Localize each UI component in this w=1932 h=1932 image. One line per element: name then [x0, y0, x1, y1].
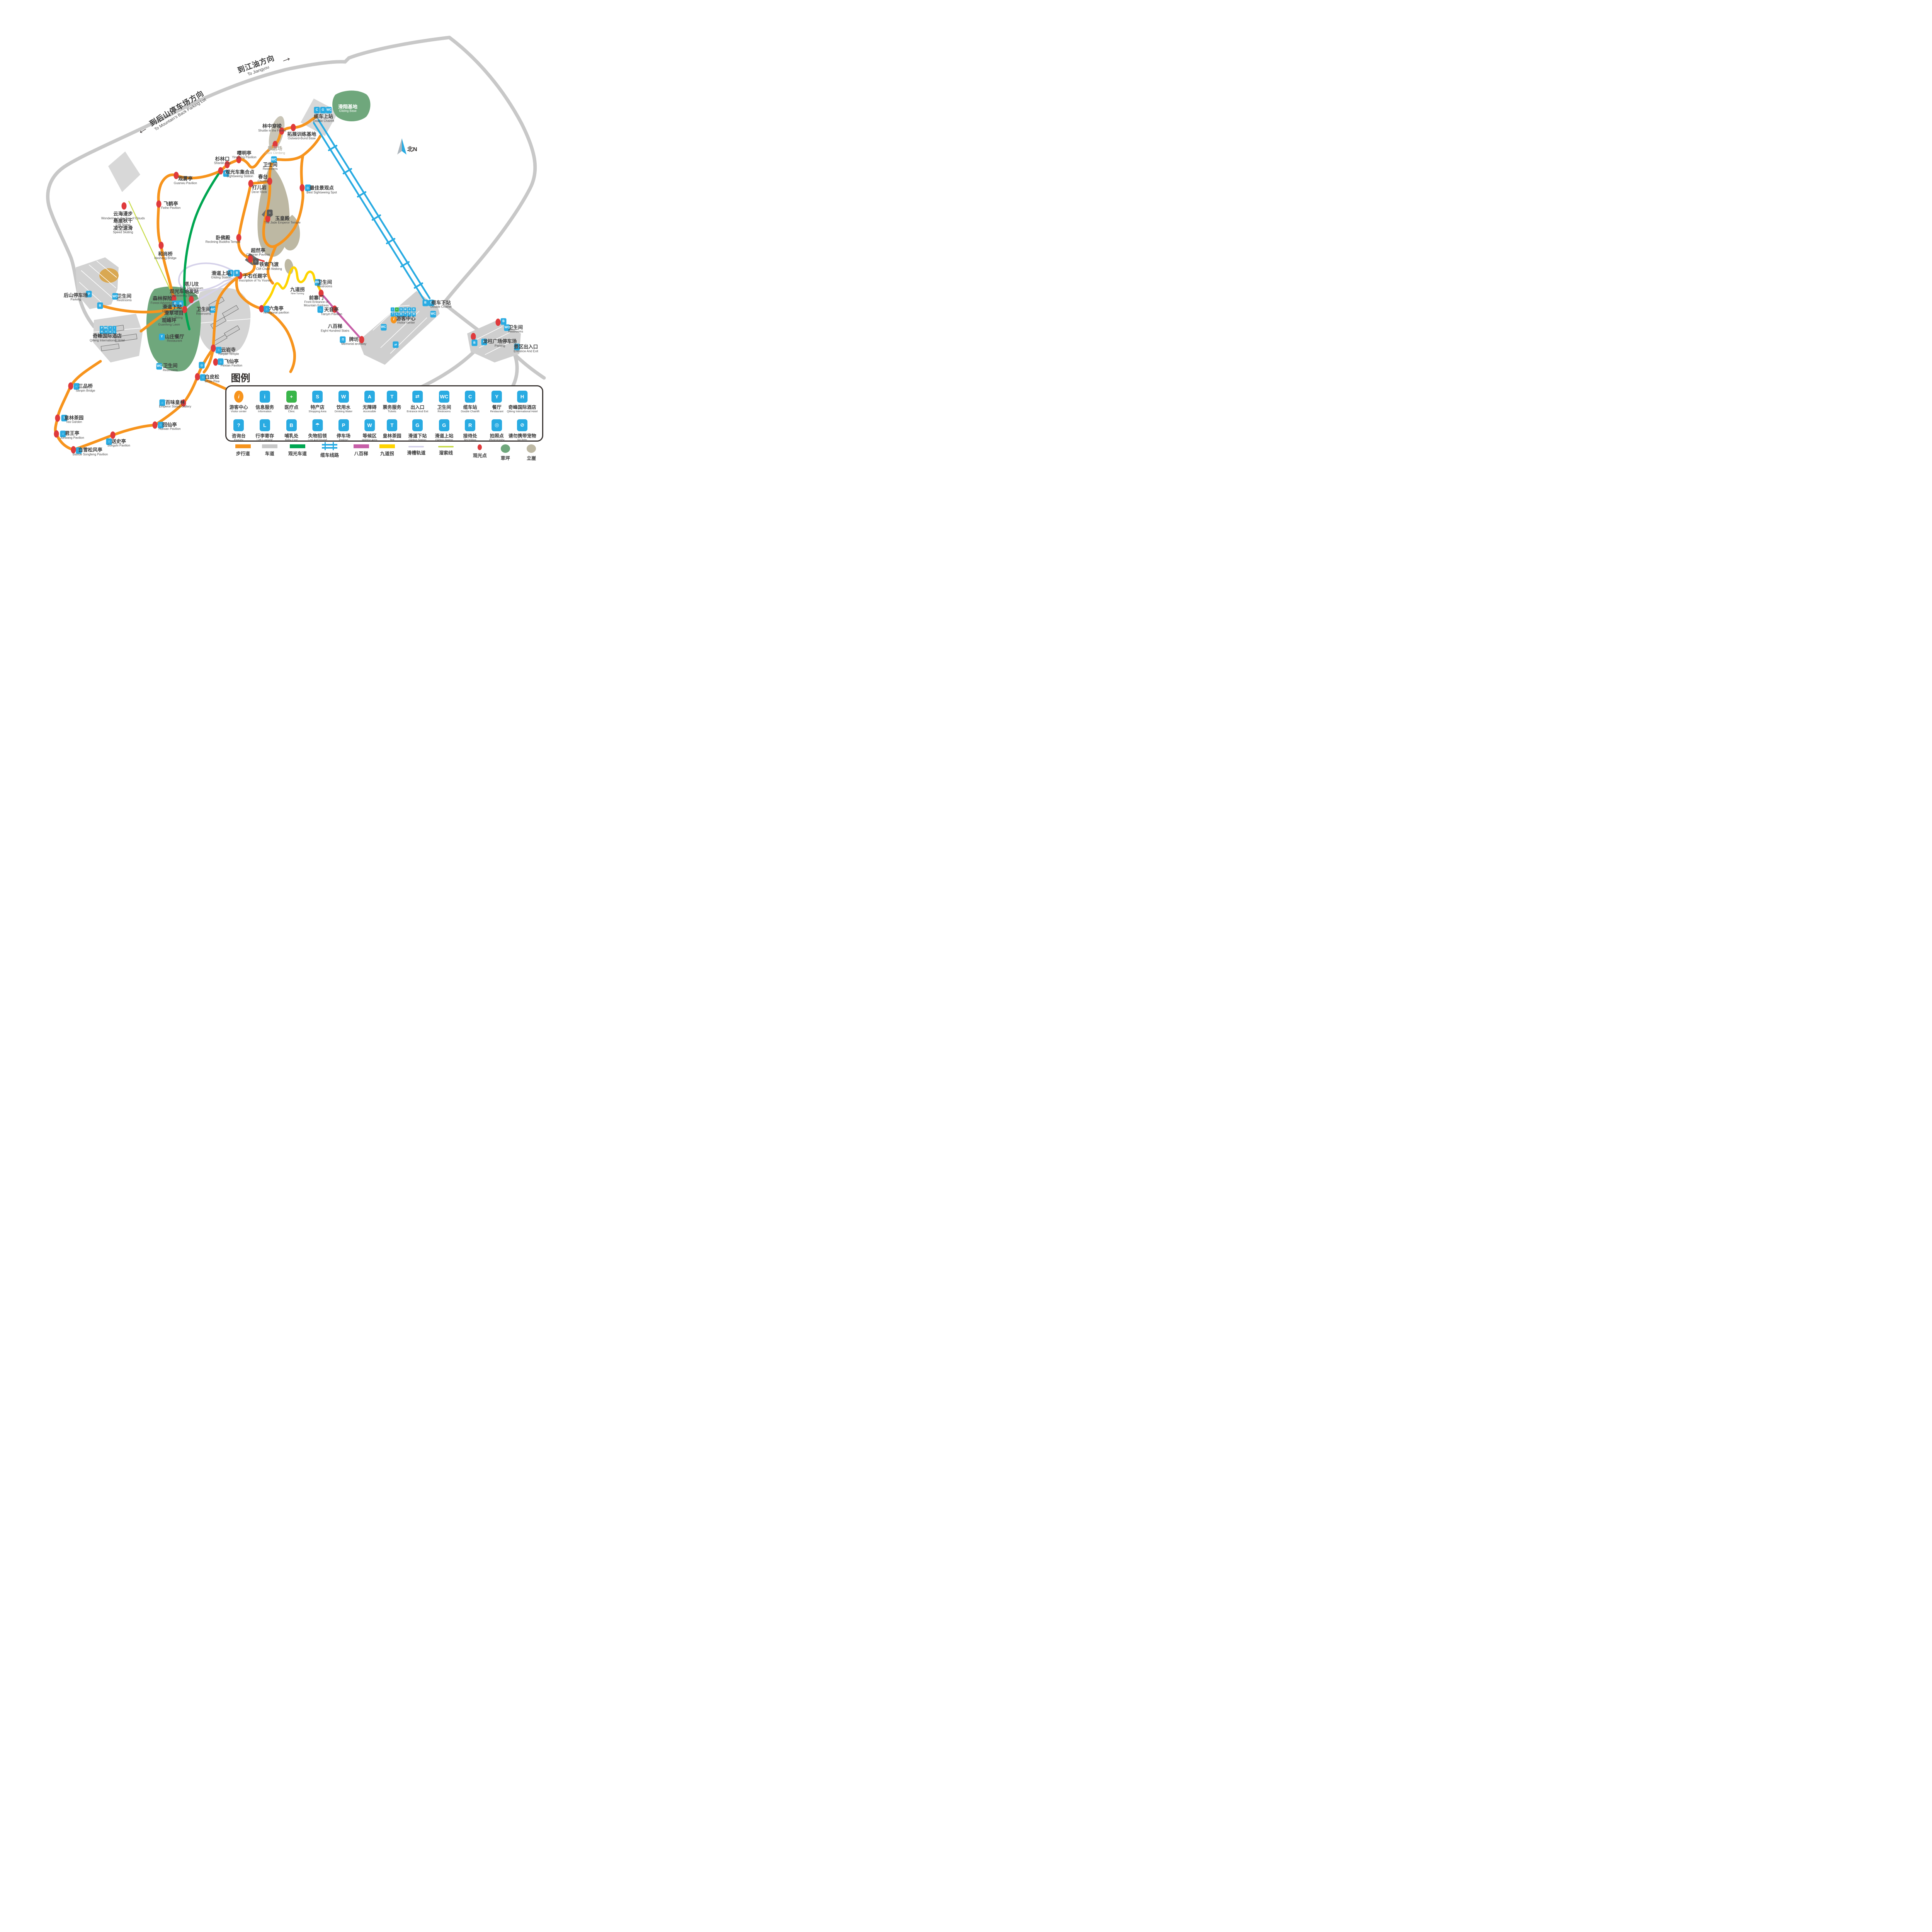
legend-zh: 饮用水 [335, 404, 352, 410]
legend-en: Gliding Station [408, 439, 427, 442]
legend-item: R接待处Reception [463, 419, 477, 442]
sightseeing-spot-dot [225, 161, 230, 168]
legend-line-zh: 观光点 [473, 452, 487, 459]
legend-zh: 缆车站 [461, 404, 480, 410]
bus-icon: B [97, 303, 103, 309]
nopets-icon: ⊘ [517, 419, 527, 431]
enquiry-icon: ? [233, 419, 244, 431]
sightseeing-spot-dot [189, 296, 194, 303]
legend-en: Enquiry [232, 439, 246, 442]
visitor-icon: i [391, 316, 397, 323]
reception-icon: R [465, 419, 475, 431]
restaurant-icon: Y [159, 333, 165, 340]
legend-en: Restrooms [437, 410, 451, 413]
legend-item: T票务服务Tickets [383, 391, 401, 413]
sightseeing-spot-dot [159, 242, 164, 249]
legend-swatch-bar [235, 444, 251, 448]
bus-icon: B [422, 299, 428, 306]
legend-en: Entrance And Exit [407, 410, 429, 413]
legend-line-zh: 草坪 [501, 455, 510, 461]
lost-icon: ☂ [403, 312, 407, 316]
restroom-icon: WC [156, 363, 162, 369]
shopping-icon: S [399, 308, 403, 312]
water-icon: W [338, 391, 349, 403]
legend-zh: 滑道上站 [435, 432, 453, 439]
sightseeing-spot-dot [272, 141, 277, 148]
waiting-icon: W [364, 419, 375, 431]
building-icon: ⌂ [267, 209, 272, 216]
legend-item: T皇林茶园Tea [383, 419, 401, 442]
camera-icon: ◎ [199, 362, 205, 369]
bus-icon: B [471, 340, 477, 346]
legend-item: ☂失物招领Lost And Found [308, 419, 327, 442]
legend-en: Drinking Water [335, 410, 352, 413]
legend-line-zh: 立崖 [527, 455, 536, 461]
legend-zh: 停车场 [337, 432, 350, 439]
sightseeing-spot-dot [122, 202, 127, 209]
legend-zh: 票务服务 [383, 404, 401, 410]
waiting-icon: W [412, 312, 416, 316]
luggage-icon: L [395, 312, 399, 316]
nopets-icon: ⊘ [108, 330, 112, 334]
restroom-icon: WC [439, 391, 449, 403]
north-arrow-icon [397, 138, 406, 155]
pavilion-icon: ⌂ [60, 430, 66, 437]
legend-swatch-bar [354, 444, 369, 448]
enquiry-icon: ? [391, 312, 395, 316]
legend-en: Parking [337, 439, 350, 442]
legend-zh: 餐厅 [490, 404, 503, 410]
legend-line-item: 立崖 [527, 444, 536, 461]
legend-line-item: 车道 [262, 444, 277, 457]
legend-item: i游客中心Visitor center [230, 391, 248, 413]
sightseeing-spot-dot [359, 336, 364, 344]
legend-title: 图例 [231, 371, 250, 384]
legend-en: Information [255, 410, 274, 413]
sightseeing-spot-dot [236, 156, 241, 163]
bus-icon: B [223, 170, 229, 177]
legend-item: ◎拍照点Photography [489, 419, 505, 442]
restroom-icon: WC [381, 324, 386, 330]
legend-line-item: 步行道 [235, 444, 251, 457]
exit-icon: ⇄ [514, 344, 520, 350]
legend-swatch-bar [262, 444, 277, 448]
sightseeing-spot-dot [291, 124, 296, 131]
legend-zh: 无障碍 [362, 404, 376, 410]
legend-en: Double Chairlift [461, 410, 480, 413]
sightseeing-spot-dot [218, 167, 223, 175]
legend-item: W饮用水Drinking Water [335, 391, 352, 413]
restroom-icon: WC [271, 156, 277, 163]
zipline [129, 201, 174, 298]
legend-item: P停车场Parking [337, 419, 350, 442]
legend-line-zh: 八百梯 [354, 450, 369, 457]
info-icon: i [260, 391, 270, 403]
sightseeing-spot-dot [195, 373, 200, 381]
sightseeing-spot-dot [55, 415, 60, 422]
legend-line-item: 草坪 [501, 444, 510, 461]
legend-zh: 请勿携带宠物 [509, 432, 536, 439]
legend-en: Lost And Found [308, 439, 327, 442]
legend-item: H奇峰国际酒店Qifeng International Hotel [507, 391, 537, 413]
restroom-icon: WC [315, 279, 320, 286]
legend-swatch-bar [290, 444, 305, 448]
legend-zh: 奇峰国际酒店 [507, 404, 537, 410]
legend-line-item: 溜索线 [438, 444, 454, 456]
gliding2-icon: G [439, 419, 449, 431]
camera-icon: ◎ [305, 185, 311, 191]
legend-line-zh: 车道 [262, 450, 277, 457]
legend-en: Photography [489, 439, 505, 442]
legend-en: Baby Care [284, 439, 298, 442]
legend-swatch-thin [438, 446, 454, 447]
legend-en: Visitor center [230, 410, 248, 413]
legend-item: i信息服务Information [255, 391, 274, 413]
luggage-icon: L [260, 419, 270, 431]
legend-line-item: 滑槽轨道 [407, 444, 425, 456]
sightseeing-spot-dot [156, 200, 161, 207]
legend-zh: 行李寄存 [255, 432, 274, 439]
sightseeing-spot-dot [248, 255, 253, 263]
sightseeing-spot-dot [211, 344, 216, 352]
sightseeing-spot-dot [300, 184, 305, 192]
gliding2-icon: G [228, 270, 234, 276]
sightseeing-spot-dot [279, 127, 284, 134]
legend-item: G滑道下站Gliding Station [408, 419, 427, 442]
lost-icon: ☂ [312, 419, 323, 431]
legend-line-zh: 步行道 [235, 450, 251, 457]
clinic-icon: + [286, 391, 297, 403]
legend-swatch-blob [501, 444, 510, 453]
legend-swatch-bar [379, 444, 395, 448]
exit-icon: ⇄ [412, 391, 423, 403]
building-icon: ⌂ [253, 258, 259, 265]
bridge-icon: ∩ [73, 383, 79, 390]
legend-line-item: 缆车线路 [320, 444, 339, 458]
legend-item: B哺乳处Baby Care [284, 419, 298, 442]
legend-item: ?咨询台Enquiry [232, 419, 246, 442]
legend-en: Waiting Area [362, 439, 377, 442]
legend-line-item: 九道拐 [379, 444, 395, 457]
parking-icon: P [481, 338, 487, 345]
bus-icon: B [412, 308, 416, 312]
legend-en: Restaurant [490, 410, 503, 413]
legend-en: Left Luggage [255, 439, 274, 442]
legend-en: Shopping Area [309, 410, 327, 413]
memorial-icon: Π [340, 337, 346, 343]
eight-hundred-stairs-path [321, 293, 362, 340]
bus-icon: B [178, 301, 184, 307]
legend-zh: 拍照点 [489, 432, 505, 439]
parking-icon: P [338, 419, 349, 431]
pavilion-icon: ⌂ [106, 438, 112, 445]
pavilion-icon: ⌂ [200, 374, 206, 381]
legend-zh: 咨询台 [232, 432, 246, 439]
north-indicator: 北N [407, 145, 417, 153]
sightseeing-spot-dot [332, 306, 337, 313]
pavilion-icon: ⌂ [318, 306, 323, 313]
legend-en: Gliding Station [435, 439, 453, 442]
legend-line-item: 八百梯 [354, 444, 369, 457]
legend-zh: 卫生间 [437, 404, 451, 410]
legend-zh: 信息服务 [255, 404, 274, 410]
pavilion-icon: ⌂ [76, 447, 82, 454]
sightseeing-spot-dot [181, 400, 186, 407]
legend-item: C缆车站Double Chairlift [461, 391, 480, 413]
bus-icon: B [501, 318, 507, 325]
sightseeing-spot-dot [174, 172, 179, 179]
info-icon: i [391, 308, 395, 312]
north-label: 北N [407, 146, 417, 153]
legend-item: ⊘请勿携带宠物No Pets [509, 419, 536, 442]
gliding-icon: G [320, 107, 326, 113]
restaurant-icon: Y [104, 330, 108, 334]
hotel-icon: H [100, 330, 104, 334]
legend-en: Reception [463, 439, 477, 442]
legend-item: +医疗点Clinic [284, 391, 298, 413]
legend-swatch-blob [527, 444, 536, 453]
legend-zh: 哺乳处 [284, 432, 298, 439]
pavilion-icon: ⌂ [264, 306, 269, 313]
legend-item: A无障碍Accessible [362, 391, 376, 413]
baby-icon: B [399, 312, 403, 316]
temple-icon: ⌂ [160, 400, 165, 406]
legend-zh: 等候区 [362, 432, 377, 439]
tea-icon: T [387, 419, 397, 431]
legend-en: Clinic [284, 410, 298, 413]
sightseeing-spot-dot [319, 289, 324, 297]
legend-en: Qifeng International Hotel [507, 410, 537, 413]
legend-swatch-double [321, 443, 338, 450]
legend-zh: 特产店 [309, 404, 327, 410]
pavilion-icon: ⌂ [158, 422, 163, 428]
chairlift-icon: C [314, 107, 320, 113]
legend-en: Tea [383, 439, 401, 442]
legend-line-zh: 观光车道 [288, 450, 307, 457]
temple-icon: ⌂ [216, 347, 222, 353]
legend-zh: 失物招领 [308, 432, 327, 439]
clinic-icon: + [395, 308, 399, 312]
legend-en: No Pets [509, 439, 536, 442]
legend-item: G滑道上站Gliding Station [435, 419, 453, 442]
legend-en: Tickets [383, 410, 401, 413]
legend-zh: 滑道下站 [408, 432, 427, 439]
legend-item: S特产店Shopping Area [309, 391, 327, 413]
legend-item: W等候区Waiting Area [362, 419, 377, 442]
legend-item: WC卫生间Restrooms [437, 391, 451, 413]
restroom-icon: WC [210, 306, 216, 313]
parking-icon: P [86, 291, 92, 298]
chairlift-icon: C [465, 391, 475, 403]
sightseeing-spot-dot [267, 177, 272, 185]
luggage-icon: L [112, 330, 116, 334]
baby-icon: B [286, 419, 297, 431]
legend-line-zh: 溜索线 [438, 449, 454, 456]
tickets-icon: T [387, 391, 397, 403]
sightseeing-spot-dot [153, 421, 158, 429]
restroom-icon: WC [112, 293, 118, 300]
legend-zh: 出入口 [407, 404, 429, 410]
legend-item: ⇄出入口Entrance And Exit [407, 391, 429, 413]
legend-line-zh: 九道拐 [379, 450, 395, 457]
bus-icon: B [234, 270, 240, 276]
sightseeing-spot-dot [54, 430, 59, 437]
sightseeing-spot-dot [182, 306, 187, 313]
gliding-icon: G [412, 419, 423, 431]
gliding-icon: G [172, 301, 178, 307]
sightseeing-spot-dot [495, 319, 500, 326]
legend-zh: 医疗点 [284, 404, 298, 410]
legend-item: L行李寄存Left Luggage [255, 419, 274, 442]
legend-swatch-dot [478, 444, 482, 450]
restroom-icon: WC [504, 324, 510, 331]
legend-zh: 游客中心 [230, 404, 248, 410]
legend-item: Y餐厅Restaurant [490, 391, 503, 413]
photo-icon: ◎ [492, 419, 502, 431]
parking-icon: P [408, 312, 412, 316]
restroom-icon: WC [430, 311, 436, 317]
tea-icon: T [61, 415, 67, 422]
legend-zh: 皇林茶园 [383, 432, 401, 439]
restaurant-icon: Y [492, 391, 502, 403]
restroom-icon: WC [326, 107, 332, 113]
legend-zh: 接待处 [463, 432, 477, 439]
legend-line-item: 观光点 [473, 444, 487, 459]
sightseeing-spot-dot [110, 432, 115, 439]
sightseeing-spot-dot [68, 383, 73, 390]
legend-line-zh: 缆车线路 [320, 452, 339, 458]
sightseeing-spot-dot [236, 234, 241, 241]
shopping-icon: S [312, 391, 323, 403]
legend-swatch-thin [408, 446, 424, 447]
legend-en: Accessible [362, 410, 376, 413]
legend-line-item: 观光车道 [288, 444, 307, 457]
scenic-area-map: 到江油方向 To Jiangyou → 到后山停车场方向 To Mountain… [0, 0, 606, 487]
legend-line-zh: 滑槽轨道 [407, 449, 425, 456]
chairlift-icon: C [429, 299, 434, 306]
sightseeing-spot-dot [71, 446, 76, 454]
accessible-icon: A [364, 391, 375, 403]
exit-icon: ⇄ [393, 342, 398, 348]
sightseeing-spot-dot [471, 333, 476, 340]
hotel-icon: H [517, 391, 527, 403]
sightseeing-spot-dot [248, 180, 253, 187]
visitor-icon: i [234, 391, 243, 403]
pavilion-icon: ⌂ [218, 359, 223, 365]
water-icon: W [403, 308, 407, 312]
accessible-icon: A [408, 308, 412, 312]
